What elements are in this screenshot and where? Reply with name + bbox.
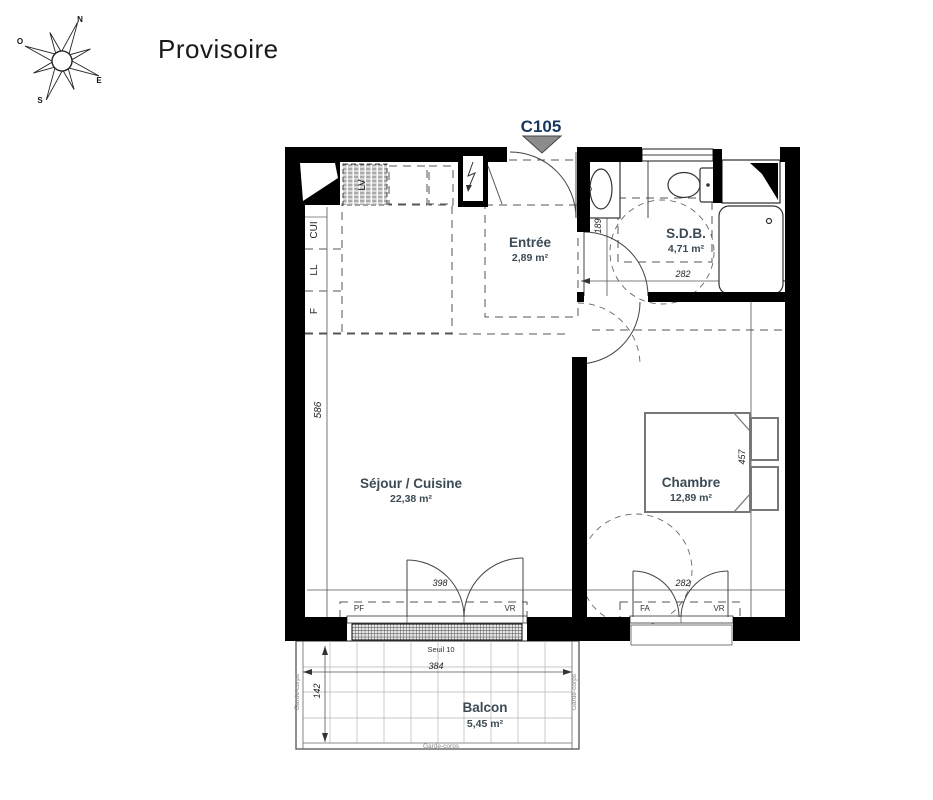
sejour-area: 22,38 m²	[390, 493, 433, 505]
dim-entree-width: 189	[593, 218, 603, 233]
dim-balcon-depth: 142	[312, 683, 322, 698]
sejour-french-door	[347, 558, 527, 623]
bedroom-door	[578, 302, 640, 364]
unit-marker: C105	[521, 117, 562, 153]
railing-label-right: Garde-corps	[571, 673, 578, 710]
entree-area: 2,89 m²	[512, 252, 549, 264]
kitchen-zone	[342, 204, 452, 333]
entree-label: Entrée	[509, 235, 552, 250]
french-door-label: PF	[354, 604, 364, 613]
kitchen-counter-top2	[429, 166, 453, 205]
balcon-area: 5,45 m²	[467, 718, 504, 730]
sejour-chambre-partition	[572, 357, 587, 617]
pillow	[751, 467, 778, 510]
compass-rose: N O E S	[5, 4, 119, 118]
dim-balcon-width: 384	[428, 661, 443, 671]
dim-chambre-window: 282	[674, 578, 690, 588]
unit-label: C105	[521, 117, 562, 136]
dim-chambre-height: 457	[737, 449, 747, 465]
dim-sdb-width: 282	[674, 269, 690, 279]
window-label: FA	[640, 604, 650, 613]
sink	[590, 169, 612, 209]
kitchen-unit-label: CUI	[309, 221, 320, 238]
shower-tray	[719, 206, 783, 294]
compass-north: N	[77, 15, 83, 24]
page-title: Provisoire	[158, 34, 279, 64]
railing-label-bottom: Garde-corps	[423, 743, 460, 750]
entrance-door	[510, 152, 576, 218]
threshold-label: Seuil 10	[427, 645, 454, 654]
balcony	[296, 641, 579, 749]
washing-machine-label: LL	[309, 264, 320, 276]
dimension-lines	[307, 162, 786, 617]
floor-plan: Entrée 2,89 m² S.D.B. 4,71 m² Séjour / C…	[0, 0, 933, 800]
threshold-hatch	[352, 624, 522, 640]
balcon-label: Balcon	[462, 700, 507, 715]
chambre-area: 12,89 m²	[670, 492, 713, 504]
railing-label-left: Garde-corps	[294, 673, 301, 710]
shower-drain	[767, 219, 772, 224]
roller-shutter-label: VR	[504, 604, 515, 613]
dashed-zones	[305, 160, 784, 626]
dim-sejour-height: 586	[313, 401, 324, 418]
entrance-arrow-icon	[523, 136, 561, 153]
corner-window-right	[722, 160, 780, 203]
sejour-label: Séjour / Cuisine	[360, 476, 463, 491]
window-sill	[631, 625, 732, 645]
entree-sdb-partition	[577, 162, 590, 232]
sdb-label: S.D.B.	[666, 226, 706, 241]
sdb-chambre-partition	[648, 292, 786, 302]
compass-east: E	[96, 76, 102, 85]
toilet-bowl	[668, 173, 700, 198]
fridge-label: F	[309, 308, 320, 314]
compass-west: O	[17, 37, 23, 46]
chambre-label: Chambre	[662, 475, 721, 490]
dim-sejour-window: 398	[432, 578, 447, 588]
dishwasher-label: LV	[357, 179, 368, 191]
top-window	[642, 149, 713, 161]
sdb-area: 4,71 m²	[668, 243, 705, 255]
kitchen-counter-top	[389, 166, 427, 205]
compass-south: S	[37, 96, 43, 105]
toilet-button	[706, 183, 710, 187]
bathroom-door	[584, 232, 648, 296]
roller-shutter-label2: VR	[713, 604, 724, 613]
chambre-turning-circle	[580, 514, 692, 626]
corner-window-left	[297, 160, 340, 205]
pillow	[751, 418, 778, 460]
